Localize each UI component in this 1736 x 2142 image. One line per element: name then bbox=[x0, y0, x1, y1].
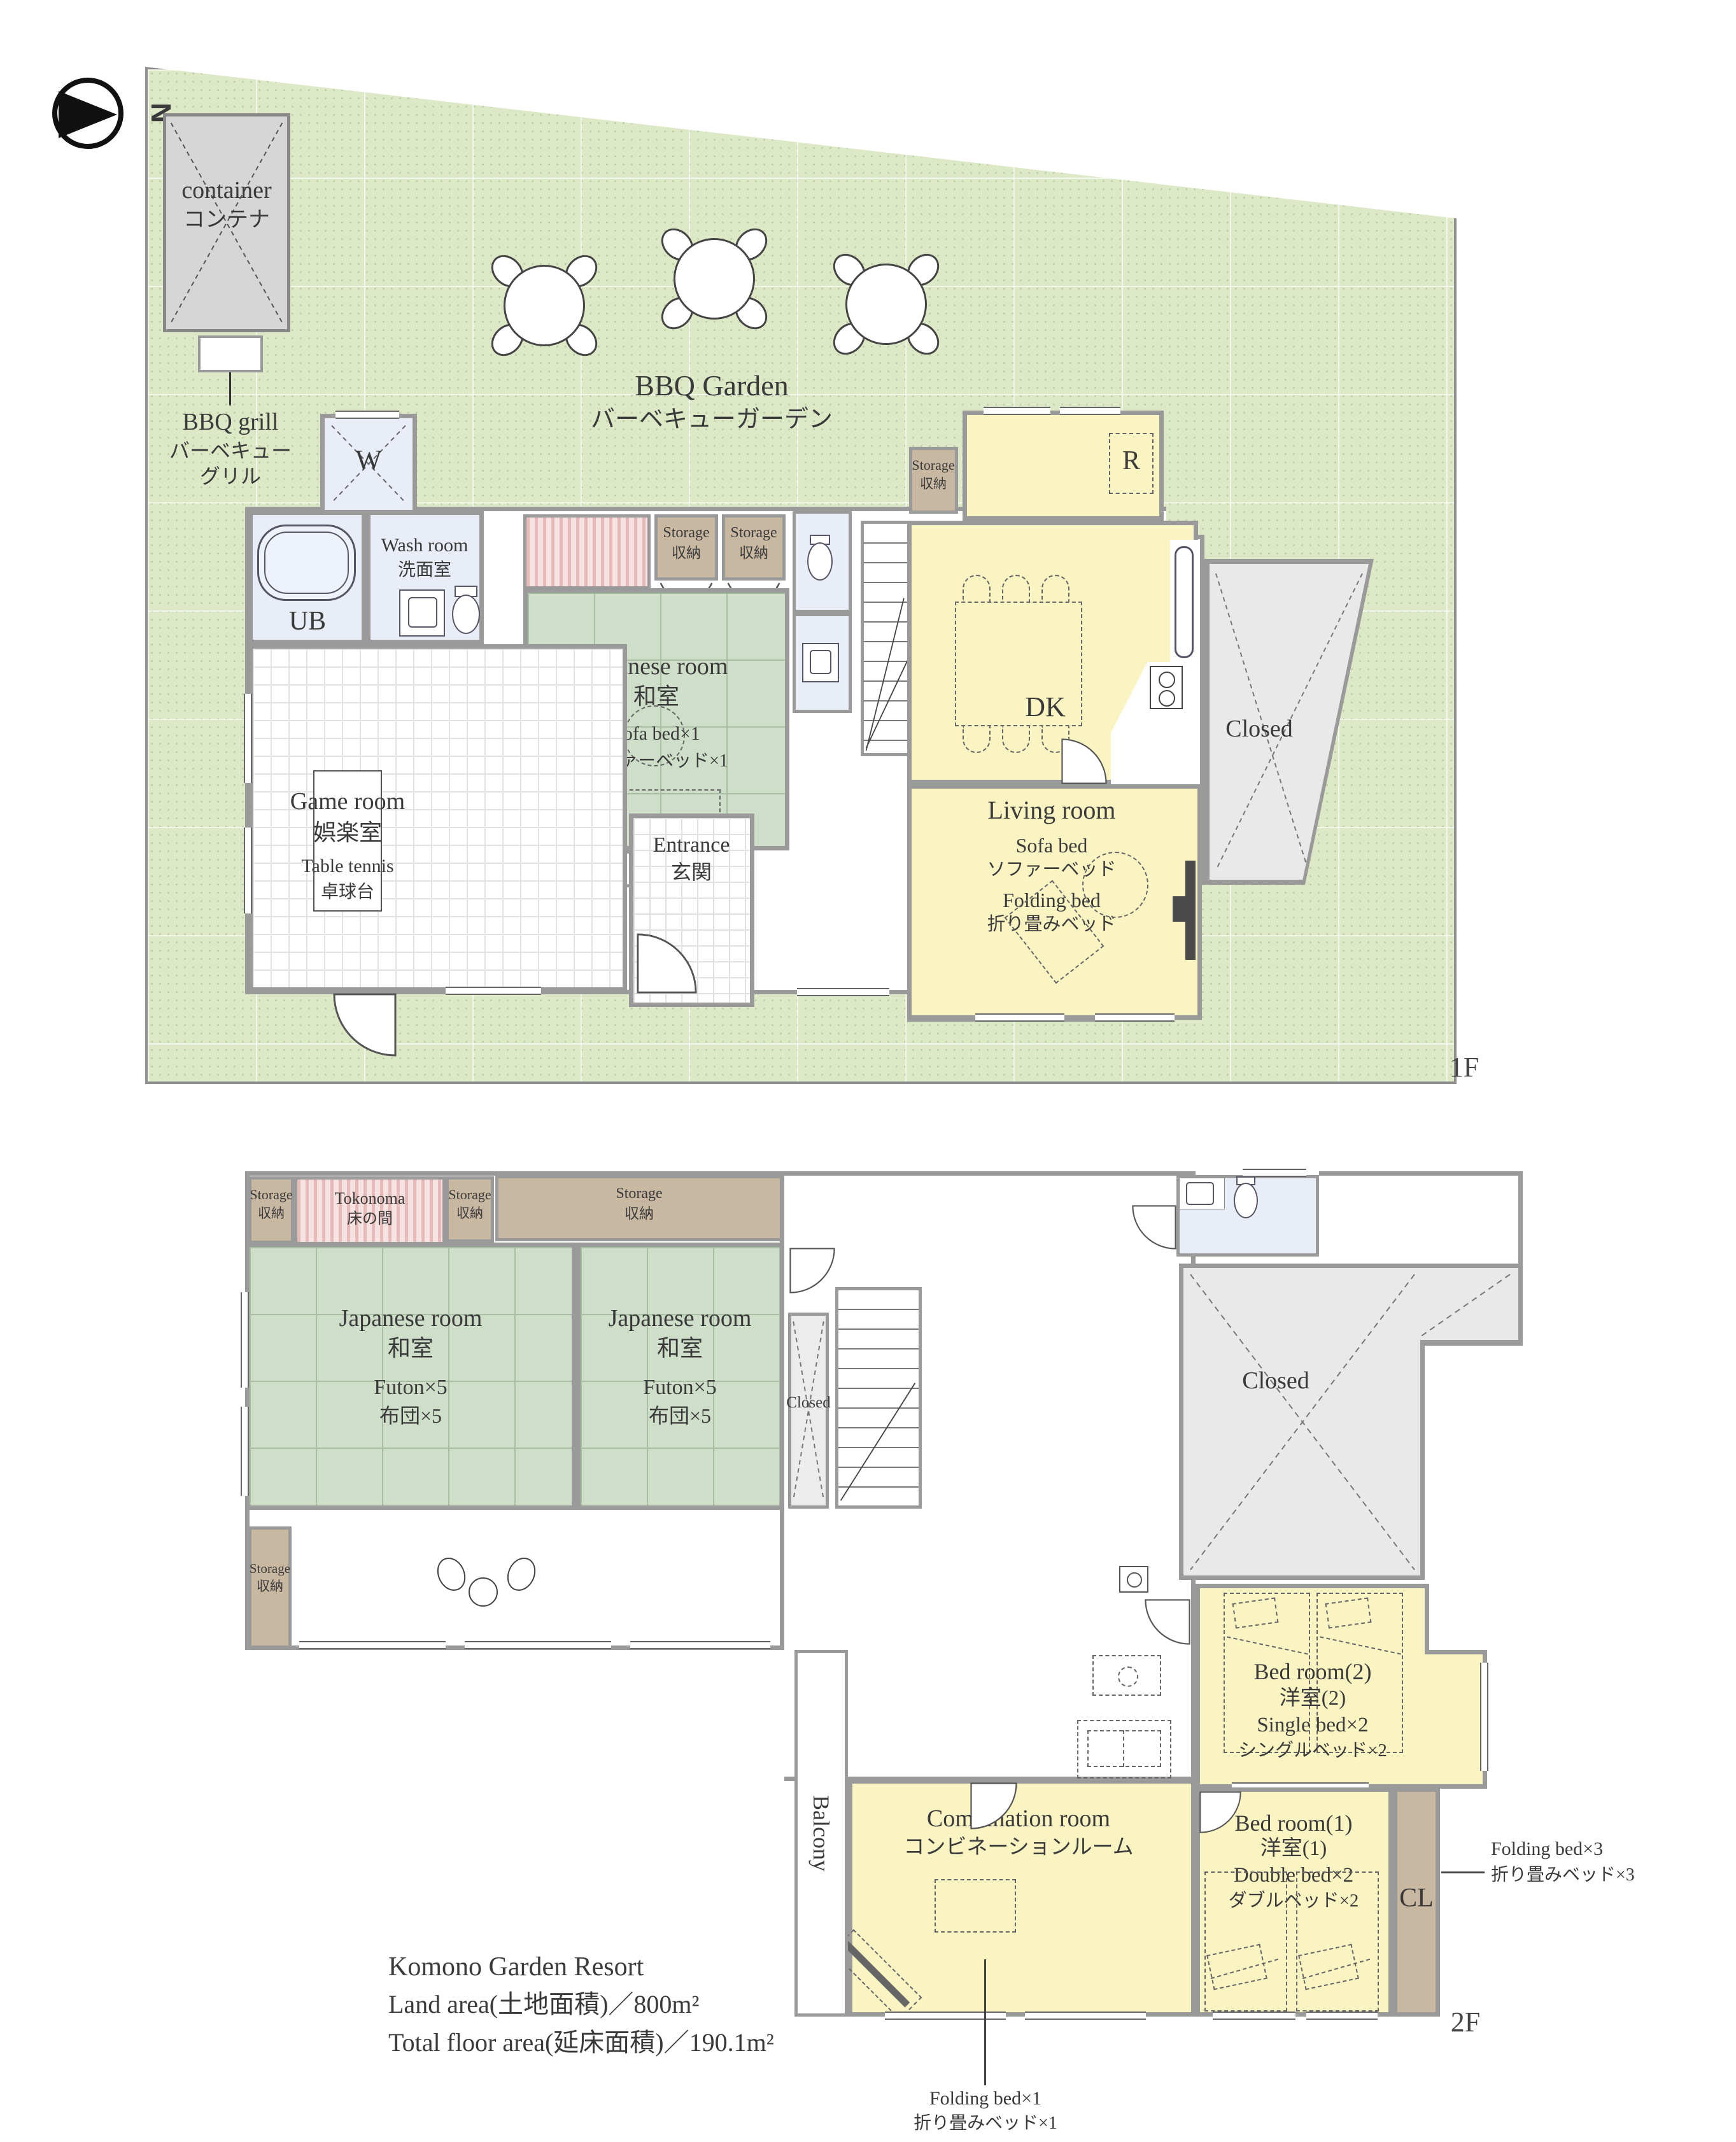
garden-table-set bbox=[834, 252, 938, 356]
folding1-label-en: Folding bed×1 bbox=[929, 2088, 1041, 2110]
jr-a-label-ja: 和室 bbox=[388, 1335, 434, 1362]
game-room-label-ja: 娯楽室 bbox=[313, 820, 382, 846]
japanese-room-1f-label-ja: 和室 bbox=[633, 684, 679, 710]
bbq-grill-label-ja1: バーベキュー bbox=[169, 439, 292, 463]
storage-label-ja: 収納 bbox=[456, 1206, 483, 1221]
living-item1-en: Sofa bed bbox=[1016, 834, 1088, 857]
window bbox=[1213, 2012, 1295, 2020]
window bbox=[241, 1292, 249, 1388]
window bbox=[1025, 2012, 1146, 2020]
window bbox=[1306, 2012, 1378, 2020]
window bbox=[446, 987, 541, 995]
round-table-icon bbox=[504, 265, 585, 346]
door-arc bbox=[1132, 1205, 1176, 1250]
kitchen-sink-icon bbox=[1175, 546, 1194, 658]
tv-stand-icon bbox=[1173, 896, 1187, 922]
window bbox=[984, 407, 1050, 415]
land-area: Land area(土地面積)／800m² bbox=[388, 1990, 700, 2019]
window bbox=[244, 694, 252, 783]
bedroom1-label-en: Bed room(1) bbox=[1235, 1810, 1353, 1836]
jr-b-label-ja: 和室 bbox=[657, 1335, 703, 1362]
f2-topright-floor bbox=[1319, 1171, 1523, 1267]
chair-outline bbox=[1002, 575, 1030, 602]
double-bed-outline bbox=[1204, 1871, 1287, 2012]
balcony-label: Balcony bbox=[808, 1795, 835, 1871]
tv-icon bbox=[1185, 861, 1196, 960]
sofa-outline bbox=[1077, 1720, 1171, 1779]
jr-a-item-en: Futon×5 bbox=[374, 1375, 448, 1400]
window bbox=[1095, 1013, 1175, 1022]
storage-label-en: Storage bbox=[250, 1561, 290, 1576]
jr-b-item-en: Futon×5 bbox=[643, 1375, 717, 1400]
storage-label-en: Storage bbox=[616, 1185, 662, 1203]
jr-b-label-en: Japanese room bbox=[609, 1305, 752, 1333]
bbq-garden-label-ja: バーベキューガーデン bbox=[591, 406, 833, 434]
sofa-bed-outline bbox=[1082, 852, 1148, 918]
alcove-strip bbox=[523, 514, 651, 589]
window bbox=[465, 1641, 611, 1649]
storage-label-en: Storage bbox=[663, 525, 709, 542]
door-arc bbox=[1061, 738, 1107, 784]
window bbox=[975, 1013, 1064, 1022]
living-room-label: Living room bbox=[987, 796, 1115, 825]
folding3-label-en: Folding bed×3 bbox=[1491, 1838, 1603, 1861]
washbasin-icon bbox=[802, 643, 839, 682]
double-bed-outline bbox=[1296, 1871, 1379, 2012]
tokonoma-label-ja: 床の間 bbox=[347, 1211, 393, 1229]
bedroom2-item-en: Single bed×2 bbox=[1257, 1714, 1368, 1738]
storage-label-ja: 収納 bbox=[258, 1206, 285, 1221]
window bbox=[299, 1641, 446, 1649]
bbq-garden-label-en: BBQ Garden bbox=[635, 369, 788, 403]
bbq-grill-label-en: BBQ grill bbox=[183, 409, 279, 437]
entrance-label-en: Entrance bbox=[653, 833, 730, 857]
bathtub-icon bbox=[257, 525, 356, 601]
container-label-ja: コンテナ bbox=[183, 208, 270, 232]
round-table-icon bbox=[674, 238, 755, 320]
north-compass-icon bbox=[52, 78, 123, 149]
storage-label-ja: 収納 bbox=[625, 1206, 654, 1222]
tokonoma-label-en: Tokonoma bbox=[335, 1189, 406, 1208]
bbq-grill-pad bbox=[198, 335, 263, 372]
door-arc bbox=[970, 1782, 1017, 1829]
window bbox=[630, 1641, 770, 1649]
game-room-label-en: Game room bbox=[290, 788, 405, 816]
storage-label-en: Storage bbox=[448, 1187, 491, 1202]
ub-room-label: UB bbox=[289, 606, 326, 637]
door-arc bbox=[333, 993, 397, 1057]
window bbox=[797, 988, 889, 996]
combo-label-ja: コンビネーションルーム bbox=[903, 1836, 1133, 1860]
bedroom2-item-ja: シングルベッド×2 bbox=[1238, 1740, 1387, 1761]
counter-icon bbox=[1119, 1566, 1148, 1593]
toilet-icon bbox=[807, 542, 833, 581]
closed-2f-x-mark bbox=[1184, 1268, 1515, 1576]
chair-outline bbox=[1002, 726, 1030, 753]
garden-table-set bbox=[492, 253, 596, 358]
washbasin-icon bbox=[399, 589, 445, 637]
round-table-icon bbox=[469, 1577, 498, 1607]
storage-label-ja: 収納 bbox=[672, 545, 701, 561]
floor2-label: 2F bbox=[1451, 2006, 1480, 2039]
storage-label-ja: 収納 bbox=[257, 1579, 283, 1594]
window bbox=[1480, 1663, 1488, 1771]
chair-outline bbox=[963, 575, 991, 602]
window bbox=[241, 1407, 249, 1496]
window bbox=[885, 2012, 1006, 2020]
closed-strip-label: Closed bbox=[786, 1394, 830, 1413]
wash-room-label-ja: 洗面室 bbox=[398, 560, 451, 581]
bedroom1-label-ja: 洋室(1) bbox=[1260, 1837, 1327, 1861]
combo-label-en: Combination room bbox=[927, 1805, 1110, 1833]
game-room-item-en: Table tennis bbox=[301, 856, 393, 878]
window bbox=[335, 411, 399, 419]
property-name: Komono Garden Resort bbox=[388, 1952, 644, 1982]
staircase-2f bbox=[835, 1287, 922, 1509]
stove-icon bbox=[1150, 666, 1183, 709]
game-room-item-ja: 卓球台 bbox=[321, 882, 374, 903]
window bbox=[244, 828, 252, 913]
storage-label-ja: 収納 bbox=[739, 545, 768, 561]
folding3-label-ja: 折り畳みベッド×3 bbox=[1491, 1865, 1635, 1885]
storage-label-en: Storage bbox=[250, 1187, 292, 1202]
window bbox=[1243, 1169, 1306, 1177]
closed-2f-label: Closed bbox=[1242, 1367, 1309, 1395]
bedroom2-label-ja: 洋室(2) bbox=[1280, 1687, 1346, 1711]
jr-b-item-ja: 布団×5 bbox=[649, 1404, 711, 1428]
round-table-icon bbox=[845, 264, 927, 345]
jr-a-item-ja: 布団×5 bbox=[379, 1404, 442, 1428]
game-room bbox=[248, 644, 627, 992]
container-label-en: container bbox=[181, 177, 271, 205]
chair-outline bbox=[1041, 575, 1069, 602]
cl-label: CL bbox=[1399, 1883, 1434, 1913]
bedroom2-label-en: Bed room(2) bbox=[1254, 1659, 1372, 1685]
refrigerator-label: R bbox=[1122, 446, 1140, 476]
floor1-label: 1F bbox=[1450, 1052, 1479, 1084]
wash-room-label-en: Wash room bbox=[381, 535, 469, 557]
compass-needle bbox=[59, 87, 117, 143]
garden-table-set bbox=[662, 227, 766, 331]
total-floor-area: Total floor area(延床面積)／190.1m² bbox=[388, 2028, 774, 2057]
toilet-icon bbox=[452, 595, 480, 634]
washbasin-icon bbox=[1179, 1178, 1225, 1209]
entrance-label-ja: 玄関 bbox=[671, 861, 712, 884]
dk-label: DK bbox=[1025, 691, 1066, 724]
table-outline bbox=[935, 1879, 1016, 1933]
storage-label-ja: 収納 bbox=[920, 476, 947, 491]
folding1-leader-line bbox=[984, 1959, 986, 2085]
storage-label-en: Storage bbox=[730, 525, 777, 542]
bbq-grill-leader-line bbox=[229, 372, 231, 405]
window bbox=[1060, 407, 1120, 415]
coffee-table-outline bbox=[1092, 1655, 1161, 1696]
chair-outline bbox=[963, 726, 991, 753]
bbq-grill-label-ja2: グリル bbox=[200, 465, 261, 488]
folding3-leader-line bbox=[1441, 1871, 1485, 1873]
jr-a-label-en: Japanese room bbox=[339, 1305, 483, 1333]
storage-label-en: Storage bbox=[912, 457, 954, 473]
folding1-label-ja: 折り畳みベッド×1 bbox=[914, 2113, 1057, 2134]
toilet-icon bbox=[1234, 1183, 1258, 1218]
closed-1f-label: Closed bbox=[1225, 715, 1293, 743]
door-arc bbox=[1145, 1599, 1190, 1645]
w-room-label: W bbox=[355, 444, 382, 477]
entrance-door-arc bbox=[637, 933, 697, 994]
bedroom-2-wing bbox=[1425, 1650, 1487, 1789]
door-arc bbox=[789, 1248, 835, 1293]
door-arc bbox=[1199, 1791, 1241, 1833]
